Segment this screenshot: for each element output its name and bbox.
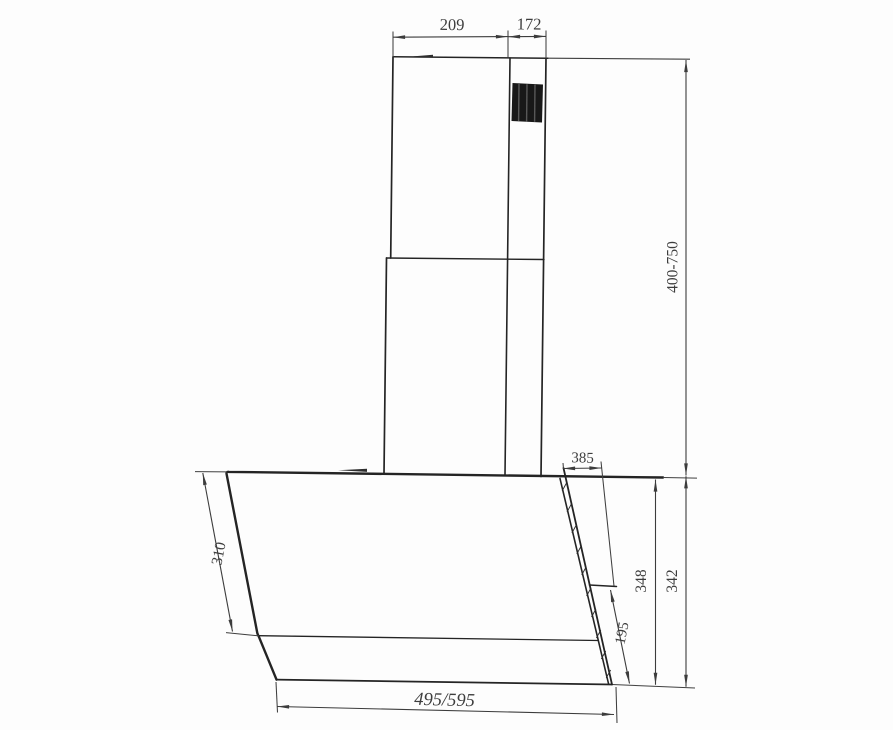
hood-bottom-edge xyxy=(277,680,613,685)
hood-body xyxy=(227,462,697,689)
dim-label-400-750: 400-750 xyxy=(665,241,682,293)
hood-bottom-extension xyxy=(612,685,695,689)
hood-top-arrow-artifact xyxy=(338,469,367,472)
dimension-348: 348 xyxy=(633,480,656,685)
dim-label-195: 195 xyxy=(613,621,633,646)
chimney-joint-line xyxy=(387,258,545,260)
inner-slant-extension xyxy=(601,462,614,587)
chimney-height-top-extension xyxy=(548,58,690,59)
extension-line xyxy=(276,682,278,713)
upper-chimney-left-edge xyxy=(391,57,393,258)
chimney-outline xyxy=(384,55,690,477)
dim-label-342: 342 xyxy=(664,569,681,592)
lower-chimney-left-edge xyxy=(384,258,387,474)
motor-bracket-line xyxy=(590,585,617,587)
dimension-400-750: 400-750 xyxy=(665,60,687,476)
dimension-line-209 xyxy=(393,37,508,38)
dim-label-172: 172 xyxy=(517,14,542,33)
chimney-inner-edge xyxy=(505,58,510,475)
extension-line xyxy=(616,687,617,723)
glass-lower-inner-edge xyxy=(259,636,598,641)
dimension-495-595: 495/595 xyxy=(276,682,617,723)
dim-label-385: 385 xyxy=(571,450,594,466)
chimney-top-edge xyxy=(393,57,548,58)
dimension-342: 342 xyxy=(664,476,686,687)
dimension-195: 195 xyxy=(611,590,633,684)
hood-top-extension xyxy=(663,478,697,479)
dimension-310: 310 xyxy=(195,472,259,636)
dim-label-310: 310 xyxy=(209,540,230,566)
extension-line xyxy=(226,633,259,636)
dimension-line-385 xyxy=(563,468,602,469)
back-panel-slant-inner xyxy=(560,479,609,685)
dim-label-348: 348 xyxy=(633,569,650,593)
hood-top-and-glass-front xyxy=(227,472,663,680)
dim-label-495-595: 495/595 xyxy=(414,690,475,711)
technical-drawing-page: 209 172 400-750 xyxy=(0,0,893,730)
hood-dimension-drawing: 209 172 400-750 xyxy=(0,0,893,730)
dimension-385: 385 xyxy=(563,450,602,469)
dimension-209-172: 209 172 xyxy=(393,14,546,58)
dim-label-209: 209 xyxy=(440,15,465,34)
